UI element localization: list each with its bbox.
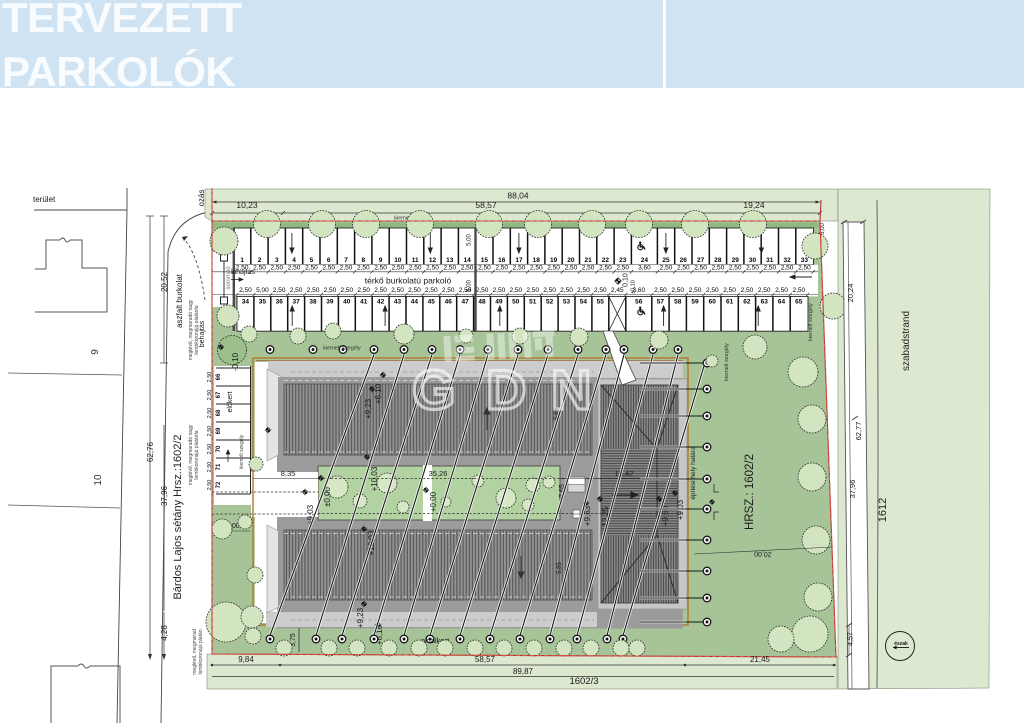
svg-text:88,04: 88,04 [507, 191, 529, 201]
svg-text:2,50: 2,50 [677, 264, 690, 271]
svg-text:26: 26 [680, 257, 688, 264]
svg-text:1: 1 [240, 257, 244, 264]
svg-text:12: 12 [429, 257, 437, 264]
svg-text:30: 30 [749, 257, 757, 264]
svg-text:2,50: 2,50 [443, 264, 456, 271]
svg-text:3: 3 [275, 257, 279, 264]
svg-text:53: 53 [563, 299, 571, 306]
svg-text:61: 61 [726, 299, 734, 306]
svg-text:TERVEZETT: TERVEZETT [2, 0, 243, 41]
svg-text:2,50: 2,50 [560, 287, 573, 294]
svg-text:35: 35 [259, 299, 267, 306]
svg-text:2,50: 2,50 [798, 264, 811, 271]
svg-text:2,50: 2,50 [305, 264, 318, 271]
svg-text:lombkoronájú platánfa: lombkoronájú platánfa [194, 430, 200, 479]
svg-text:2,50: 2,50 [660, 264, 673, 271]
svg-text:72: 72 [216, 481, 222, 488]
svg-text:67: 67 [216, 391, 222, 398]
svg-text:aszfalt burkolat: aszfalt burkolat [175, 273, 184, 328]
svg-text:D: D [486, 358, 526, 421]
svg-text:35,26: 35,26 [429, 469, 448, 478]
svg-text:2,50: 2,50 [712, 264, 725, 271]
svg-text:39: 39 [326, 299, 334, 306]
svg-text:2: 2 [258, 257, 262, 264]
svg-text:48: 48 [478, 299, 486, 306]
svg-text:2,50: 2,50 [493, 287, 506, 294]
svg-text:2,50: 2,50 [442, 287, 455, 294]
svg-text:36: 36 [276, 299, 284, 306]
svg-text:2,50: 2,50 [392, 264, 405, 271]
svg-text:kiemelt szegély: kiemelt szegély [239, 434, 245, 469]
svg-text:behajtás: behajtás [199, 320, 206, 347]
svg-text:G: G [412, 358, 456, 421]
svg-text:építési hely határa: építési hely határa [690, 446, 697, 500]
svg-text:kiemelt szegély: kiemelt szegély [323, 346, 361, 352]
svg-text:16: 16 [498, 257, 506, 264]
svg-text:62: 62 [743, 299, 751, 306]
svg-text:54: 54 [580, 299, 588, 306]
svg-text:N: N [551, 358, 591, 421]
svg-text:HRSZ.: 1602/2: HRSZ.: 1602/2 [744, 454, 756, 530]
svg-text:31: 31 [766, 257, 774, 264]
svg-text:2,50: 2,50 [357, 264, 370, 271]
svg-text:2,50: 2,50 [671, 287, 684, 294]
svg-text:20,00: 20,00 [754, 550, 772, 558]
svg-text:23: 23 [619, 257, 627, 264]
svg-text:9: 9 [379, 257, 383, 264]
svg-text:2,50: 2,50 [775, 287, 788, 294]
svg-text:13: 13 [446, 257, 454, 264]
svg-text:kiemelt szegély: kiemelt szegély [808, 303, 814, 341]
svg-text:2,50: 2,50 [273, 287, 286, 294]
svg-text:57: 57 [657, 299, 665, 306]
svg-text:46: 46 [445, 299, 453, 306]
svg-text:sorompó: sorompó [226, 266, 232, 290]
svg-text:2,50: 2,50 [792, 287, 805, 294]
svg-text:14: 14 [463, 257, 471, 264]
svg-text:71: 71 [216, 463, 222, 470]
svg-text:20,24: 20,24 [846, 284, 855, 303]
svg-text:18,42: 18,42 [615, 469, 634, 478]
svg-text:±0,10: ±0,10 [631, 280, 637, 294]
svg-text:0,10: 0,10 [623, 273, 630, 287]
svg-text:2,50: 2,50 [689, 287, 702, 294]
svg-text:50: 50 [512, 299, 520, 306]
svg-text:6: 6 [327, 257, 331, 264]
svg-text:2,50: 2,50 [741, 287, 754, 294]
svg-text:21: 21 [584, 257, 592, 264]
svg-text:+0,00: +0,00 [429, 491, 438, 512]
svg-text:17: 17 [515, 257, 523, 264]
svg-text:42: 42 [377, 299, 385, 306]
svg-text:37,96: 37,96 [848, 480, 857, 499]
svg-text:5,00: 5,00 [467, 280, 473, 292]
svg-text:szabadstrand: szabadstrand [901, 311, 912, 371]
svg-text:56: 56 [635, 299, 643, 306]
svg-text:20: 20 [567, 257, 575, 264]
svg-text:2,50: 2,50 [239, 287, 252, 294]
svg-text:5,85: 5,85 [557, 562, 563, 574]
svg-text:2,50: 2,50 [594, 287, 607, 294]
svg-text:2,50: 2,50 [547, 264, 560, 271]
svg-text:2,50: 2,50 [781, 264, 794, 271]
svg-text:10,23: 10,23 [236, 200, 258, 210]
svg-text:70: 70 [216, 445, 222, 452]
svg-text:+6,10: +6,10 [374, 383, 383, 404]
svg-text:2,50: 2,50 [746, 264, 759, 271]
svg-text:37: 37 [292, 299, 300, 306]
svg-text:2,50: 2,50 [270, 264, 283, 271]
svg-text:+9,23: +9,23 [364, 398, 373, 419]
svg-text:19: 19 [550, 257, 558, 264]
svg-text:+9,23: +9,23 [356, 607, 365, 628]
svg-text:2,50: 2,50 [322, 264, 335, 271]
svg-text:89,87: 89,87 [513, 667, 534, 676]
svg-text:15: 15 [481, 257, 489, 264]
svg-text:62,76: 62,76 [146, 441, 155, 462]
svg-text:2,50: 2,50 [577, 287, 590, 294]
svg-text:45: 45 [428, 299, 436, 306]
svg-text:5,00: 5,00 [467, 234, 473, 246]
svg-text:2,50: 2,50 [476, 287, 489, 294]
svg-text:25: 25 [662, 257, 670, 264]
svg-text:47: 47 [461, 299, 469, 306]
svg-text:2,50: 2,50 [758, 287, 771, 294]
svg-text:21,45: 21,45 [750, 655, 771, 664]
svg-text:10: 10 [93, 474, 104, 486]
svg-text:9,84: 9,84 [238, 655, 254, 664]
svg-text:2,50: 2,50 [409, 264, 422, 271]
svg-text:11: 11 [412, 257, 419, 264]
svg-text:2,45: 2,45 [611, 287, 624, 294]
svg-text:lombkoronájú platánfa: lombkoronájú platánfa [194, 305, 200, 354]
svg-text:64: 64 [778, 299, 786, 306]
svg-text:2,50: 2,50 [526, 287, 539, 294]
svg-text:40: 40 [343, 299, 351, 306]
svg-text:43: 43 [394, 299, 402, 306]
svg-text:20,52: 20,52 [160, 271, 169, 292]
svg-text:2,50: 2,50 [324, 287, 337, 294]
svg-text:63: 63 [761, 299, 769, 306]
svg-text:38: 38 [309, 299, 317, 306]
svg-text:2,50: 2,50 [495, 264, 508, 271]
svg-text:52: 52 [546, 299, 554, 306]
svg-text:37,96: 37,96 [160, 485, 169, 506]
svg-text:2,50: 2,50 [461, 264, 474, 271]
svg-text:28: 28 [714, 257, 722, 264]
svg-text:2,50: 2,50 [616, 264, 629, 271]
svg-text:58,57: 58,57 [475, 200, 497, 210]
svg-text:lombkoronájú platán: lombkoronájú platán [198, 629, 204, 674]
svg-text:41: 41 [360, 299, 368, 306]
svg-text:59: 59 [691, 299, 699, 306]
svg-text:ozás: ozás [197, 190, 206, 207]
svg-text:2,50: 2,50 [307, 287, 320, 294]
svg-text:2,50: 2,50 [694, 264, 707, 271]
svg-text:2,50: 2,50 [340, 264, 353, 271]
svg-text:8,35: 8,35 [281, 469, 296, 478]
svg-text:44: 44 [411, 299, 419, 306]
svg-text:24: 24 [641, 257, 649, 264]
svg-text:2,50: 2,50 [340, 287, 353, 294]
svg-text:2,50: 2,50 [565, 264, 578, 271]
svg-text:4: 4 [292, 257, 296, 264]
svg-text:2,50: 2,50 [513, 264, 526, 271]
svg-text:2,50: 2,50 [582, 264, 595, 271]
svg-text:kiemelt szegély: kiemelt szegély [724, 343, 730, 381]
svg-text:2,50: 2,50 [290, 287, 303, 294]
svg-text:2,50: 2,50 [654, 287, 667, 294]
svg-text:19,24: 19,24 [743, 200, 765, 210]
svg-text:5,00: 5,00 [256, 287, 269, 294]
svg-text:+10,03: +10,03 [370, 466, 379, 491]
svg-text:68: 68 [216, 409, 222, 416]
svg-text:2,50: 2,50 [253, 264, 266, 271]
svg-text:PARKOLÓK: PARKOLÓK [2, 47, 235, 95]
svg-text:2,50: 2,50 [408, 287, 421, 294]
svg-text:3,60: 3,60 [638, 264, 651, 271]
svg-text:2,50: 2,50 [391, 287, 404, 294]
svg-text:2,50: 2,50 [288, 264, 301, 271]
svg-text:2,50: 2,50 [374, 287, 387, 294]
svg-text:27: 27 [697, 257, 705, 264]
svg-text:2,50: 2,50 [509, 287, 522, 294]
svg-text:29: 29 [732, 257, 740, 264]
svg-text:2,50: 2,50 [543, 287, 556, 294]
svg-text:4,57: 4,57 [848, 632, 855, 646]
svg-text:32: 32 [783, 257, 791, 264]
svg-text:55: 55 [597, 299, 605, 306]
svg-text:2,50: 2,50 [530, 264, 543, 271]
svg-text:2,50: 2,50 [357, 287, 370, 294]
svg-text:9: 9 [90, 349, 101, 355]
svg-text:49: 49 [495, 299, 503, 306]
svg-text:2,50: 2,50 [763, 264, 776, 271]
svg-text:2,50: 2,50 [478, 264, 491, 271]
svg-text:62,77: 62,77 [854, 422, 863, 441]
svg-text:10: 10 [394, 257, 402, 264]
svg-text:2,50: 2,50 [425, 287, 438, 294]
svg-text:22: 22 [602, 257, 610, 264]
svg-text:1612: 1612 [877, 498, 889, 522]
svg-text:69: 69 [216, 427, 222, 434]
svg-text:66: 66 [216, 373, 222, 380]
svg-text:2,50: 2,50 [426, 264, 439, 271]
svg-text:33: 33 [801, 257, 809, 264]
svg-text:51: 51 [529, 299, 537, 306]
svg-text:4,28: 4,28 [160, 625, 169, 641]
svg-text:34: 34 [242, 299, 250, 306]
svg-text:-0,10: -0,10 [231, 352, 240, 371]
svg-text:2,50: 2,50 [706, 287, 719, 294]
svg-text:18: 18 [533, 257, 541, 264]
svg-text:1602/3: 1602/3 [569, 676, 598, 687]
svg-text:58: 58 [674, 299, 682, 306]
svg-text:5: 5 [310, 257, 314, 264]
svg-text:2,50: 2,50 [729, 264, 742, 271]
svg-text:58,57: 58,57 [475, 655, 496, 664]
svg-text:7: 7 [344, 257, 348, 264]
svg-text:kihajtás: kihajtás [231, 269, 255, 276]
svg-text:térkő burkolatú parkoló: térkő burkolatú parkoló [365, 276, 452, 286]
svg-text:60: 60 [709, 299, 717, 306]
svg-text:8: 8 [361, 257, 365, 264]
svg-text:előkert: előkert [227, 391, 234, 412]
svg-text:2,50: 2,50 [599, 264, 612, 271]
svg-text:2,50: 2,50 [723, 287, 736, 294]
svg-text:terület: terület [33, 195, 56, 204]
svg-text:Bárdos Lajos sétány Hrsz.:1602: Bárdos Lajos sétány Hrsz.:1602/2 [172, 434, 184, 599]
svg-text:65: 65 [795, 299, 803, 306]
svg-text:2,50: 2,50 [374, 264, 387, 271]
